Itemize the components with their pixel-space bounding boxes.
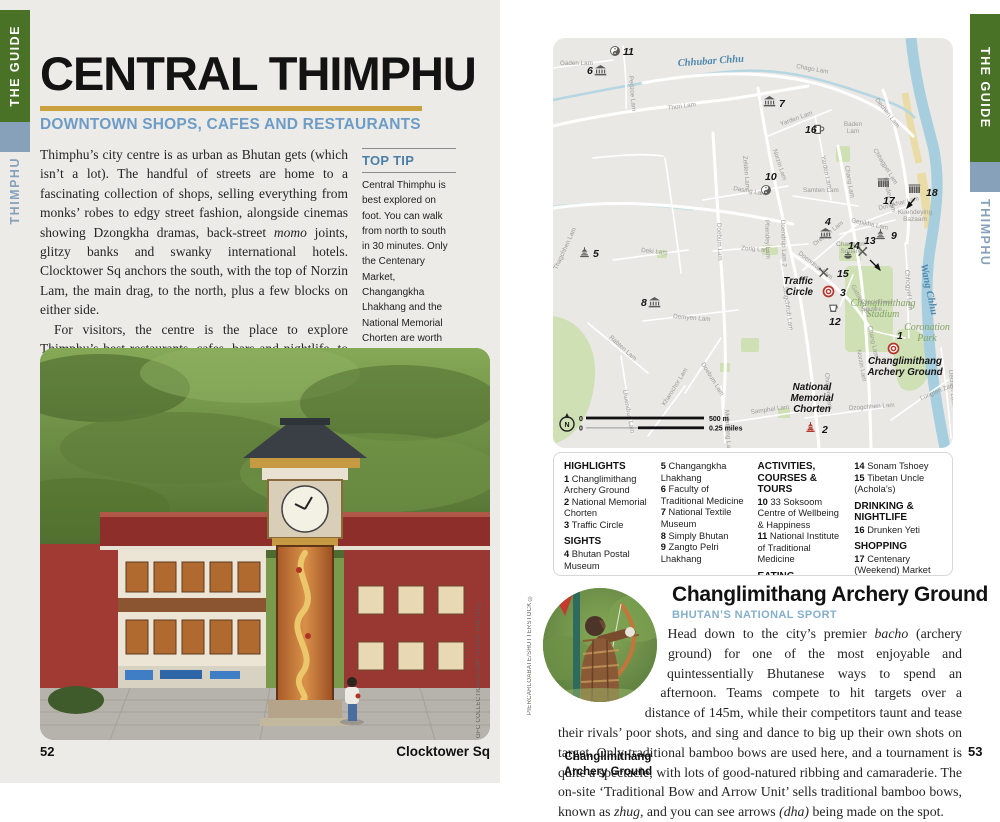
svg-text:Norzin Lam: Norzin Lam	[855, 349, 867, 382]
map-marker-icon-chorten	[806, 422, 814, 431]
svg-text:Wang Chhu: Wang Chhu	[918, 263, 940, 316]
map-marker-number: 7	[779, 98, 786, 110]
archer-photo-caption: ChanglimithangArchery Ground	[540, 750, 676, 780]
legend-section-header: DRINKING & NIGHTLIFE	[854, 501, 942, 524]
svg-text:Lhuendrup Lam: Lhuendrup Lam	[621, 389, 636, 434]
map-marker-icon-ring	[824, 287, 834, 297]
legend-section-header: EATING	[758, 571, 846, 576]
map-marker-number: 11	[623, 46, 634, 58]
legend-item: 15 Tibetan Uncle (Achola’s)	[854, 473, 942, 496]
legend-section-header: ACTIVITIES, COURSES & TOURS	[758, 461, 846, 496]
svg-text:BadenLam: BadenLam	[844, 121, 863, 135]
article-kicker: BHUTAN’S NATIONAL SPORT	[672, 609, 837, 621]
map-marker-number: 16	[805, 124, 817, 136]
map-marker-icon-ring	[889, 344, 899, 354]
legend-item: 7 National Textile Museum	[661, 507, 749, 530]
legend-item: 4 Bhutan Postal Museum	[564, 549, 652, 572]
page-subtitle: DOWNTOWN SHOPS, CAFES AND RESTAURANTS	[40, 116, 421, 134]
map-marker-number: 8	[641, 297, 647, 309]
tab-blue-left	[0, 122, 30, 152]
page-number-left: 52	[40, 744, 54, 759]
svg-text:Chhubar Chhu: Chhubar Chhu	[677, 54, 744, 70]
svg-text:Thori Lam: Thori Lam	[667, 101, 696, 112]
photo-credit-right: PIERCARLOABATE/SHUTTERSTOCK ©	[527, 585, 533, 715]
tab-thimphu-left: THIMPHU	[0, 156, 30, 226]
svg-text:Samten Lam: Samten Lam	[803, 187, 839, 194]
svg-text:Pedzoe Lam: Pedzoe Lam	[627, 76, 637, 112]
legend-item: 2 National Memorial Chorten	[564, 497, 652, 520]
map-marker-icon-museum	[764, 96, 776, 106]
intro-paragraph-1: Thimphu’s city centre is as urban as Bhu…	[40, 145, 348, 320]
legend-item: 11 National Institute of Traditional Med…	[758, 531, 846, 566]
compass-north-label: N	[564, 422, 569, 429]
map-marker-number: 17	[883, 195, 896, 207]
svg-text:Doebum Lam: Doebum Lam	[715, 223, 723, 261]
scale-500m: 500 m	[709, 416, 729, 423]
tab-the-guide-right: THE GUIDE	[970, 14, 1000, 162]
map-marker-number: 5	[593, 248, 599, 260]
map-scalebar: N 0 500 m 0 0.25 miles	[560, 413, 743, 433]
legend-column: HIGHLIGHTS1 Changlimithang Archery Groun…	[564, 461, 652, 567]
tab-thimphu-right: THIMPHU	[970, 198, 1000, 268]
map-marker-number: 15	[837, 268, 849, 280]
legend-item: 9 Zangto Pelri Lhakhang	[661, 542, 749, 565]
map-marker-icon-yinyang	[611, 47, 620, 56]
clocktower-photo	[40, 348, 490, 740]
map-marker-icon-yinyang	[762, 186, 771, 195]
map-marker-number: 2	[821, 424, 828, 436]
top-tip-heading: TOP TIP	[362, 153, 456, 168]
legend-section-header: HIGHLIGHTS	[564, 461, 652, 473]
legend-item: 14 Sonam Tshoey	[854, 461, 942, 473]
map-marker-icon-museum	[649, 297, 661, 307]
scale-zero: 0	[579, 416, 583, 423]
map-marker-icon-cup	[830, 305, 837, 311]
map-marker-number: 18	[926, 187, 938, 199]
svg-text:Dzogchhen Lam: Dzogchhen Lam	[849, 402, 895, 412]
page-title: CENTRAL THIMPHU	[40, 50, 500, 97]
svg-text:Zorig Lam: Zorig Lam	[741, 245, 770, 254]
gold-rule	[40, 106, 422, 111]
map-illustration: Gaden LamPedzoe LamChago LamThori LamTha…	[553, 38, 953, 448]
tab-the-guide-left: THE GUIDE	[0, 10, 30, 122]
map-marker-number: 1	[897, 330, 903, 342]
legend-item: 3 Traffic Circle	[564, 520, 652, 532]
map-marker-number: 10	[765, 171, 777, 183]
map-marker-number: 13	[864, 235, 876, 247]
legend-section-header: SIGHTS	[564, 536, 652, 548]
legend-section-header: SHOPPING	[854, 541, 942, 553]
legend-columns: HIGHLIGHTS1 Changlimithang Archery Groun…	[564, 461, 942, 567]
map-marker-number: 14	[848, 240, 860, 252]
map-marker-number: 6	[587, 65, 593, 77]
map-marker-icon-museum	[595, 65, 607, 75]
top-tip-rule-mid	[362, 172, 456, 173]
legend-item: 16 Drunken Yeti	[854, 525, 942, 537]
map-marker-icon-temple	[580, 247, 589, 256]
tab-the-guide-right-label: THE GUIDE	[978, 47, 992, 129]
map-marker-icon-market	[909, 185, 921, 193]
svg-text:Thagchhen Lam: Thagchhen Lam	[553, 227, 578, 271]
page-number-right: 53	[968, 744, 982, 759]
map-marker-number: 12	[829, 316, 841, 328]
svg-text:ChanglimithangArchery Ground: ChanglimithangArchery Ground	[866, 356, 943, 378]
clocktower-photo-illustration	[40, 348, 490, 740]
map-marker-number: 3	[840, 287, 846, 299]
legend-item: 1 Changlimithang Archery Ground	[564, 474, 652, 497]
legend-column: ACTIVITIES, COURSES & TOURS10 33 Soksoom…	[758, 461, 846, 567]
thimphu-map: Gaden LamPedzoe LamChago LamThori LamTha…	[553, 38, 953, 448]
article-title: Changlimithang Archery Ground	[672, 583, 988, 607]
legend-item: 6 Faculty of Traditional Medicine	[661, 484, 749, 507]
photo-credit-left: GFC COLLECTION/ALAMY STOCK PHOTO ©	[476, 598, 482, 738]
svg-text:Chago Lam: Chago Lam	[796, 63, 829, 76]
legend-item: 17 Centenary (Weekend) Market	[854, 554, 942, 576]
legend-item: 5 Changangkha Lhakhang	[661, 461, 749, 484]
svg-text:Yarden Lam: Yarden Lam	[819, 155, 833, 190]
top-tip-rule-top	[362, 148, 456, 149]
map-marker-number: 9	[891, 230, 897, 242]
svg-text:TrafficCircle: TrafficCircle	[783, 276, 813, 298]
svg-text:Rabten Lam: Rabten Lam	[608, 334, 638, 362]
scale-zero-2: 0	[579, 426, 583, 433]
tab-thimphu-left-label: THIMPHU	[8, 157, 22, 224]
footer-caption: Clocktower Sq	[396, 744, 490, 759]
tab-thimphu-right-label: THIMPHU	[978, 199, 992, 266]
map-street-labels: Gaden LamPedzoe LamChago LamThori LamTha…	[553, 60, 953, 448]
scale-quarter-mile: 0.25 miles	[709, 426, 743, 433]
legend-item: 10 33 Soksoom Centre of Wellbeing & Happ…	[758, 497, 846, 532]
map-legend: HIGHLIGHTS1 Changlimithang Archery Groun…	[553, 452, 953, 576]
archer-photo-illustration	[543, 588, 657, 702]
svg-text:NationalMemorialChorten: NationalMemorialChorten	[790, 382, 833, 415]
legend-item: 8 Simply Bhutan	[661, 531, 749, 543]
tab-blue-right	[970, 162, 1000, 192]
legend-column: 5 Changangkha Lhakhang6 Faculty of Tradi…	[661, 461, 749, 567]
archer-photo	[543, 588, 657, 702]
tab-the-guide-left-label: THE GUIDE	[8, 25, 22, 107]
legend-column: 14 Sonam Tshoey15 Tibetan Uncle (Achola’…	[854, 461, 942, 567]
svg-text:Zelden Lam: Zelden Lam	[741, 156, 751, 190]
map-marker-number: 4	[824, 216, 831, 228]
